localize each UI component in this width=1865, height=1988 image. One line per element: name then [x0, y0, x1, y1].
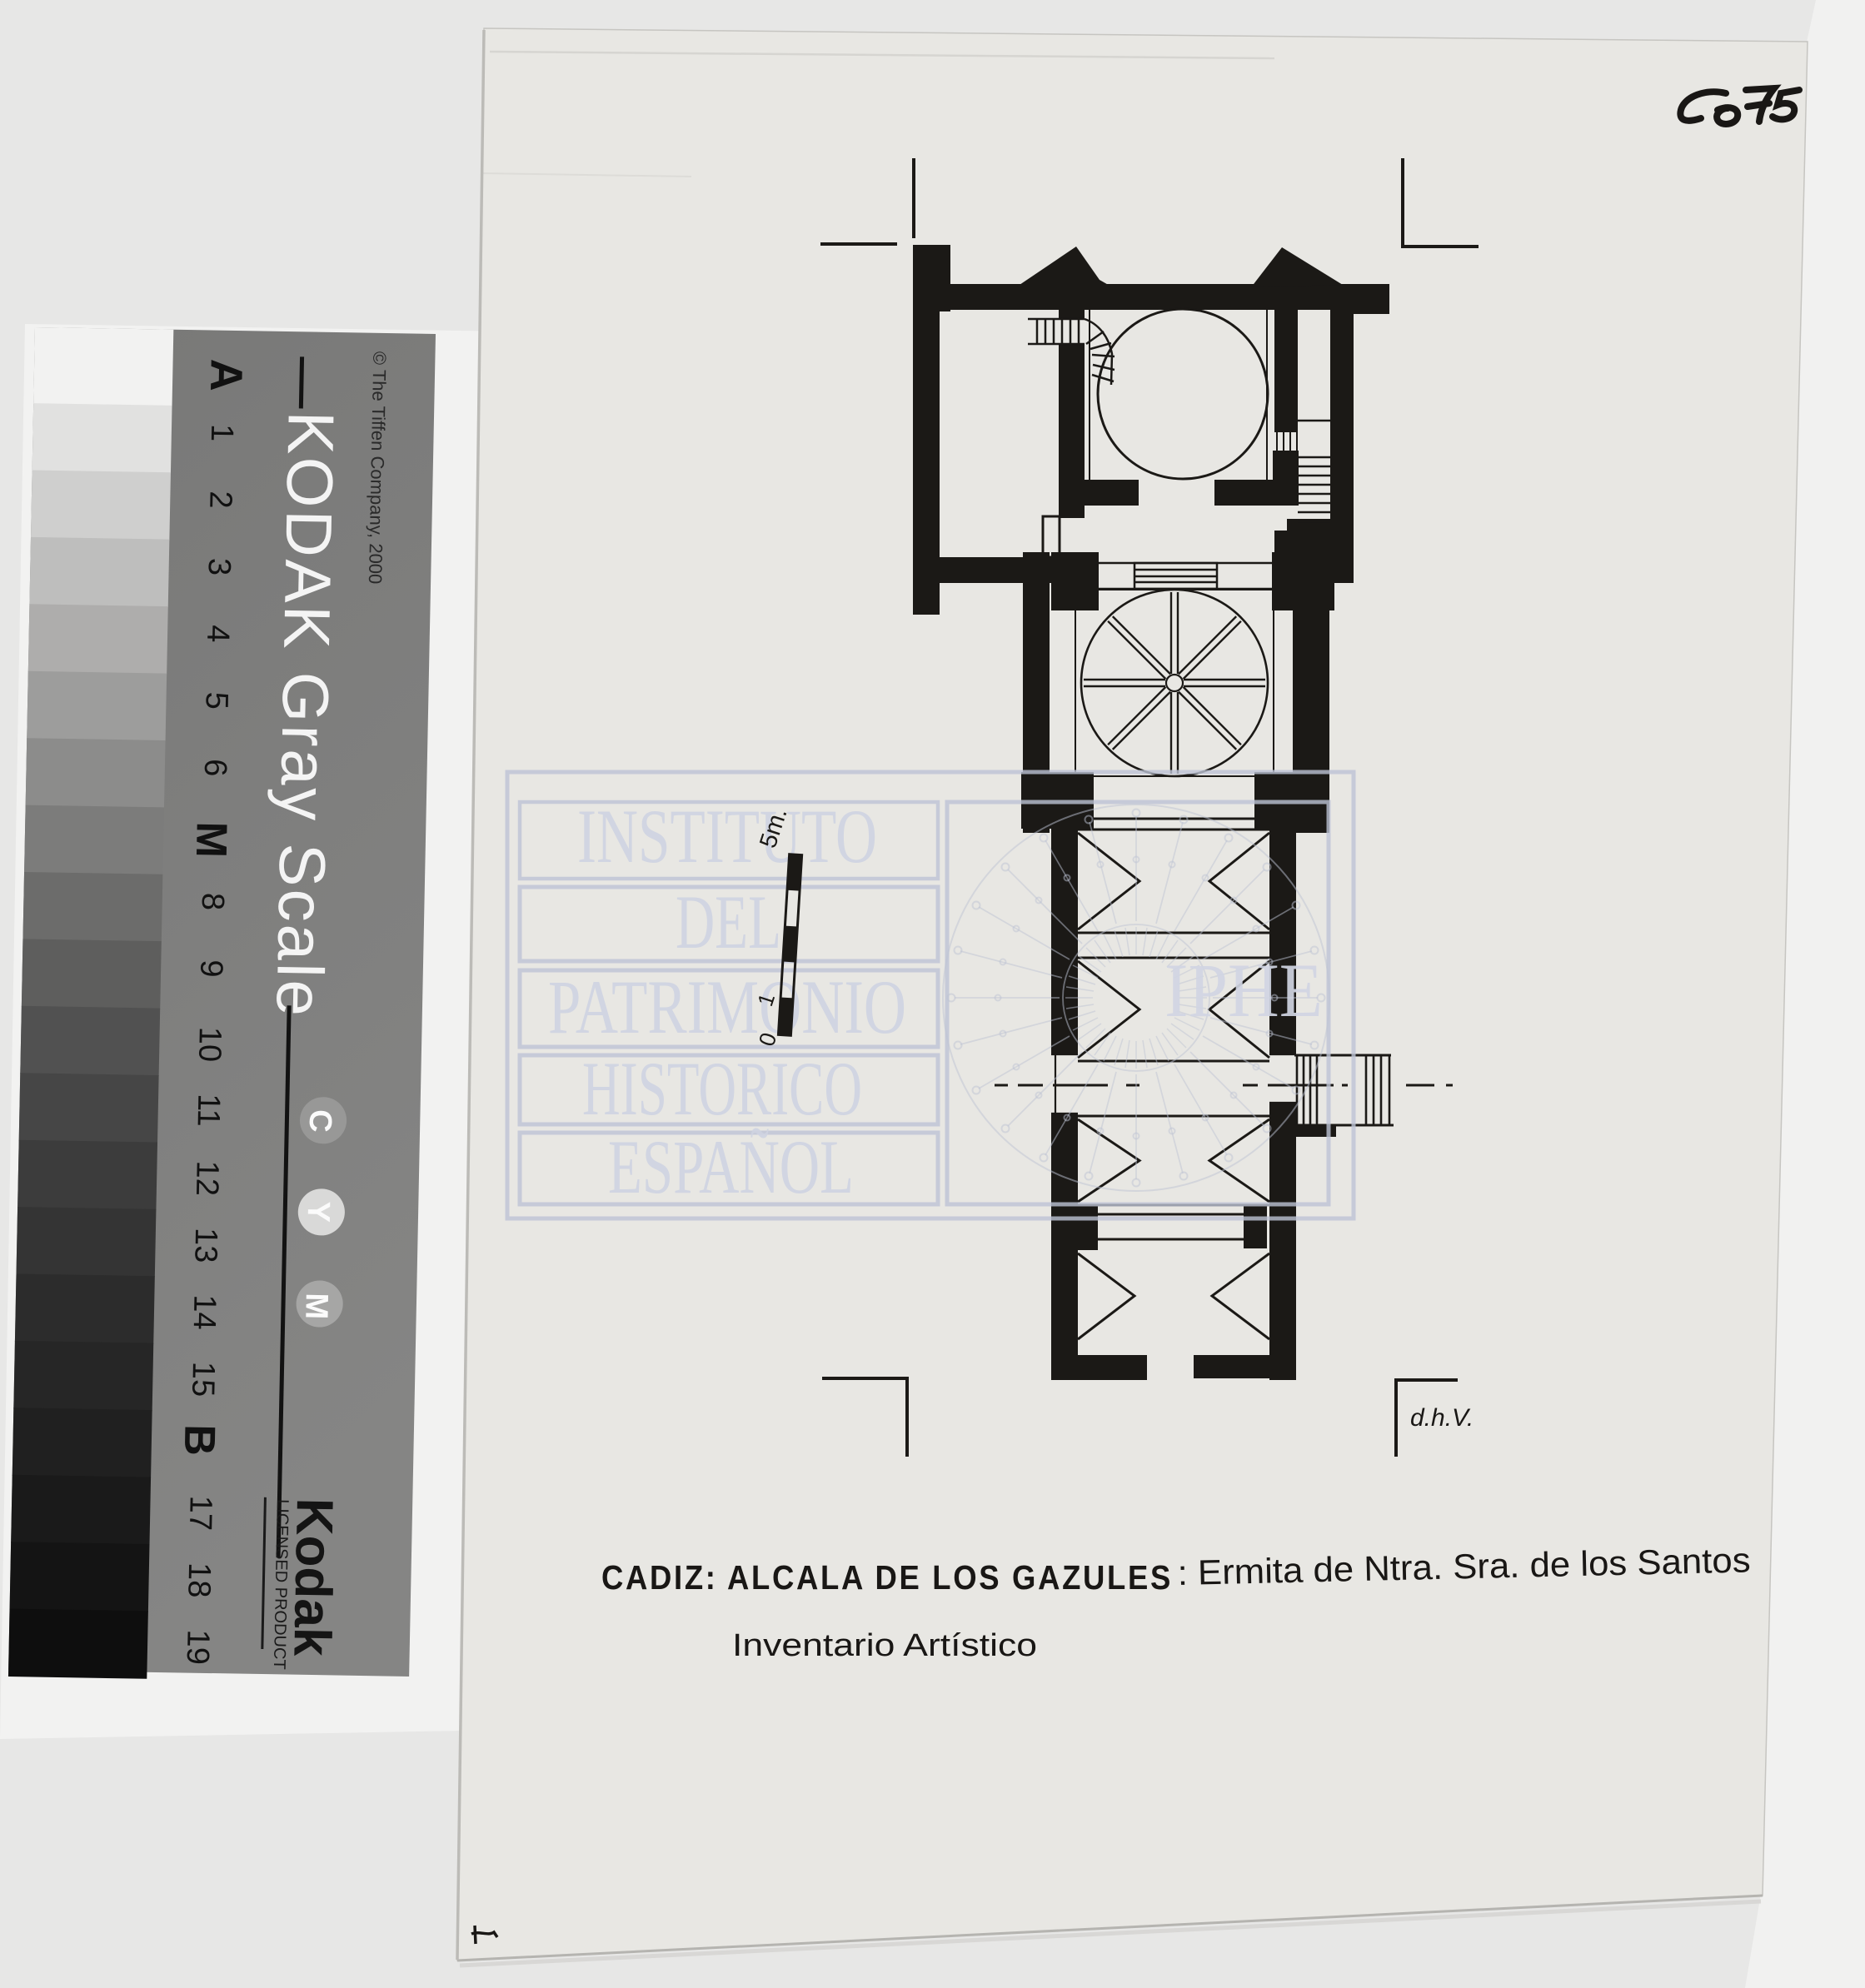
svg-text:Inventario Artístico: Inventario Artístico: [732, 1628, 1037, 1663]
svg-text:17: 17: [182, 1495, 218, 1531]
svg-text:14: 14: [187, 1294, 222, 1330]
svg-text:C: C: [302, 1109, 338, 1133]
svg-text:19: 19: [180, 1629, 216, 1665]
svg-text:M: M: [298, 1293, 334, 1319]
svg-text:Y: Y: [301, 1201, 337, 1223]
svg-text:HISTORICO: HISTORICO: [582, 1046, 862, 1131]
svg-text:5: 5: [198, 691, 233, 710]
svg-text:6: 6: [197, 759, 232, 777]
svg-text:1: 1: [204, 424, 239, 442]
svg-text:12: 12: [189, 1160, 225, 1196]
svg-text:18: 18: [181, 1562, 217, 1598]
svg-text:M: M: [187, 821, 236, 858]
svg-text:DEL: DEL: [676, 879, 781, 964]
svg-text:IPHE: IPHE: [1164, 948, 1323, 1033]
svg-text:2: 2: [202, 491, 237, 509]
svg-text:ESPAÑOL: ESPAÑOL: [608, 1124, 854, 1209]
svg-text:9: 9: [193, 959, 228, 978]
svg-text:10: 10: [192, 1026, 227, 1062]
svg-text:4: 4: [200, 625, 235, 643]
svg-text:LICENSED PRODUCT: LICENSED PRODUCT: [270, 1499, 292, 1670]
svg-text:13: 13: [187, 1228, 223, 1263]
svg-text:d.h.V.: d.h.V.: [1410, 1404, 1474, 1432]
svg-text:CADIZ: ALCALA DE LOS GAZULES: CADIZ: ALCALA DE LOS GAZULES: [601, 1558, 1173, 1597]
svg-text:15: 15: [185, 1362, 221, 1398]
svg-text:B: B: [175, 1424, 224, 1457]
svg-text:8: 8: [195, 893, 230, 911]
svg-text:A: A: [201, 358, 252, 391]
svg-text:INSTITUTO: INSTITUTO: [577, 794, 877, 879]
svg-text:3: 3: [202, 558, 237, 576]
svg-text:11: 11: [191, 1094, 227, 1127]
svg-text:KODAK Gray Scale: KODAK Gray Scale: [262, 411, 347, 1019]
svg-text:PATRIMONIO: PATRIMONIO: [548, 964, 906, 1049]
